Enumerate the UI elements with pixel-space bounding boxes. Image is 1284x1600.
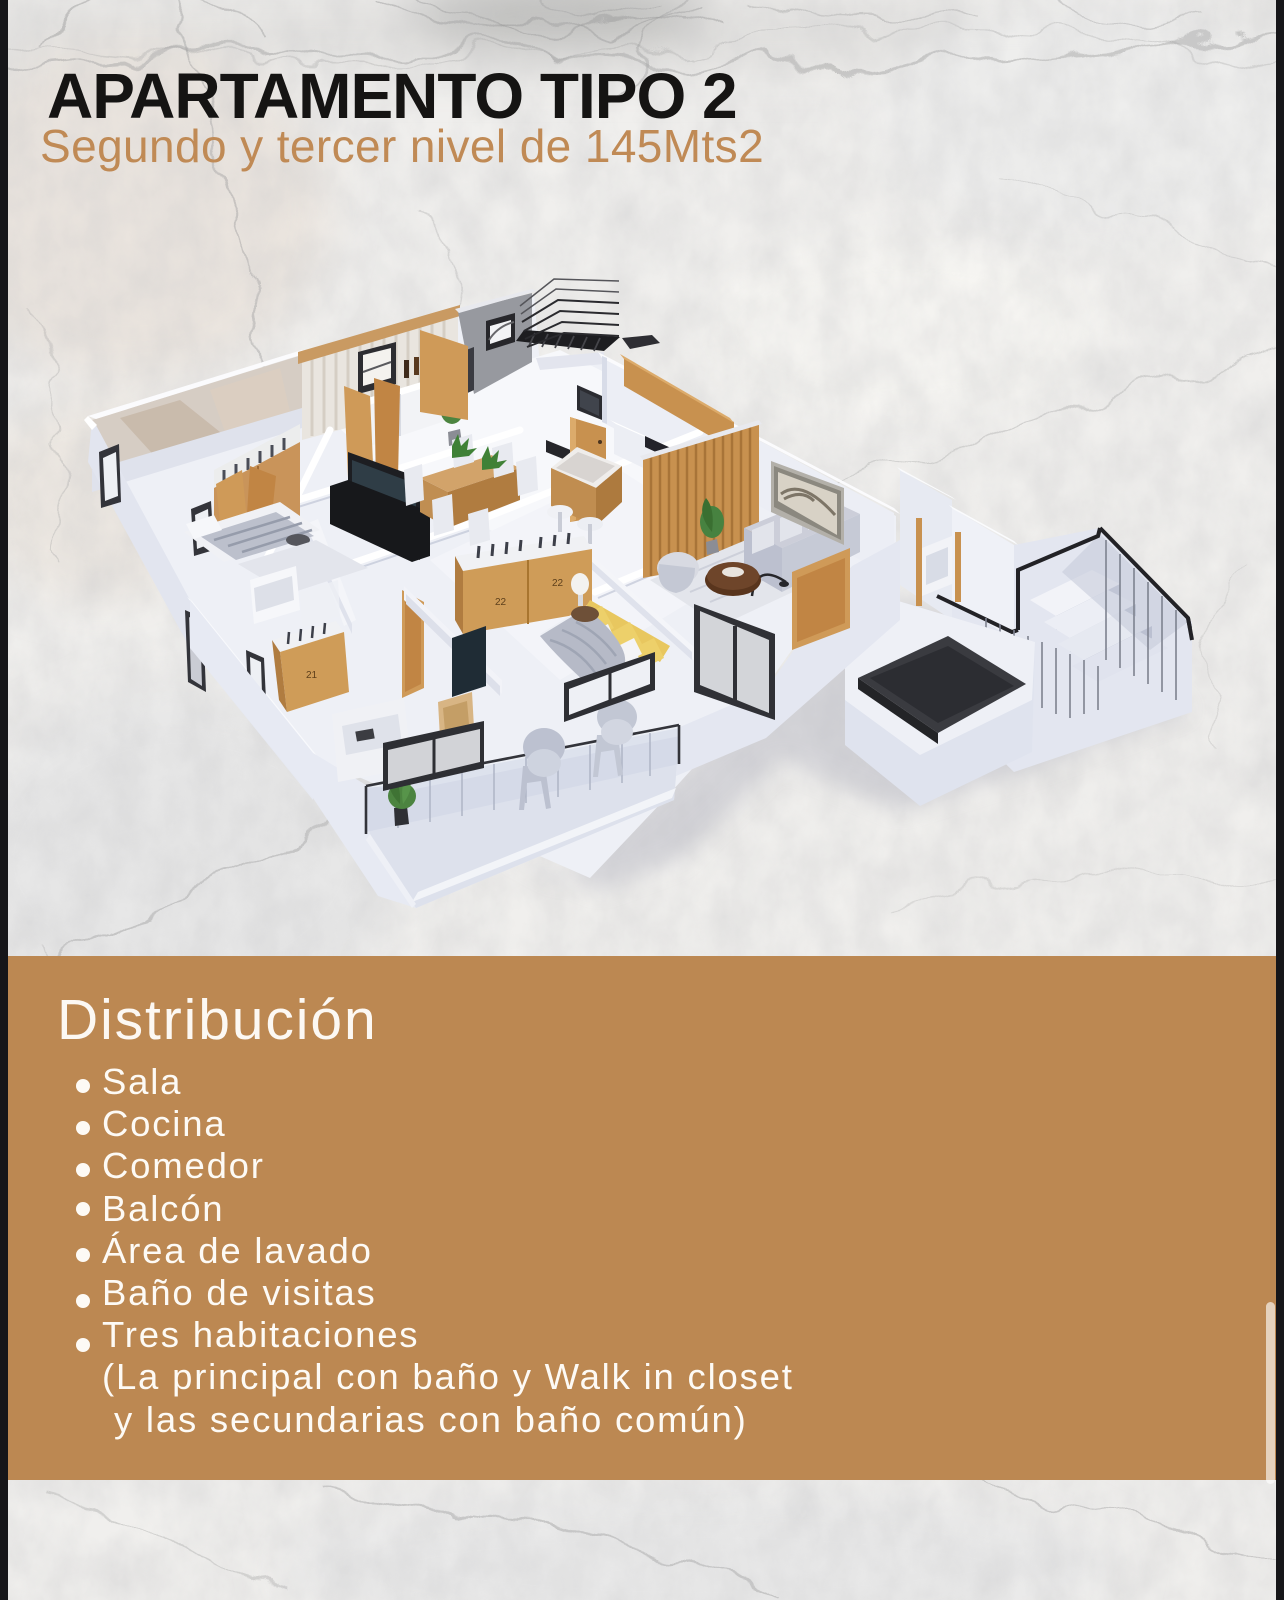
svg-text:22: 22 xyxy=(552,578,564,589)
svg-text:21: 21 xyxy=(306,670,318,681)
svg-text:22: 22 xyxy=(495,597,507,608)
